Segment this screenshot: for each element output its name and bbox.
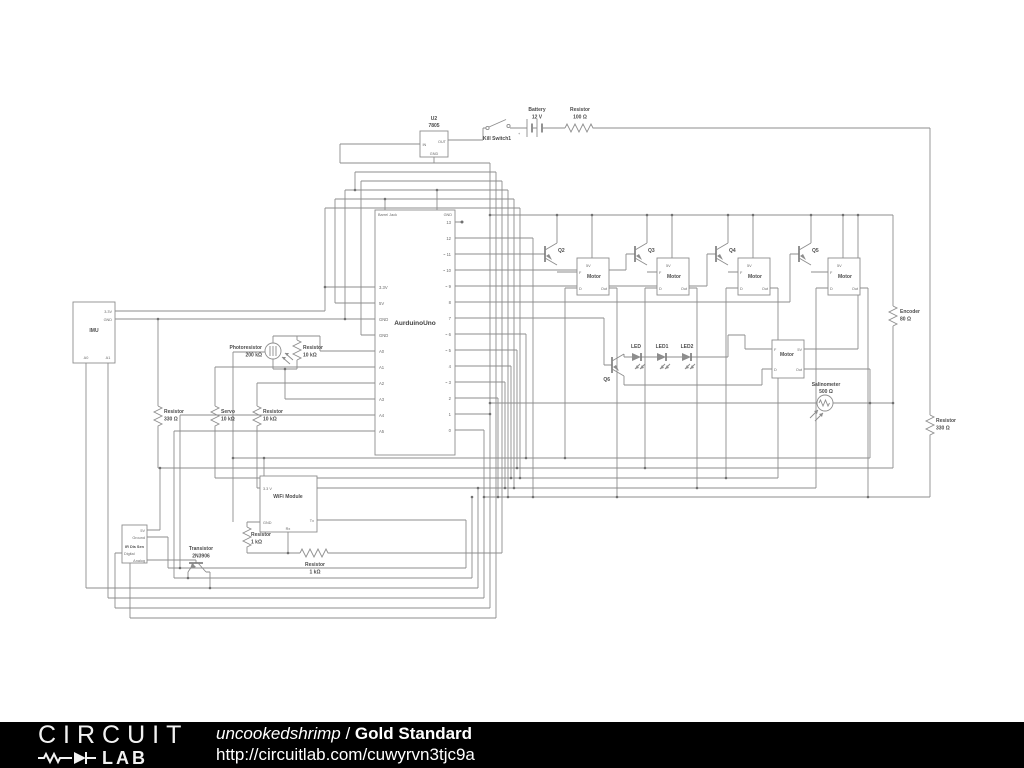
- arduino-uno-block: Barrel Jack GND AurduinoUno 3.3V 5V GND …: [375, 210, 455, 455]
- schematic-title: Gold Standard: [355, 724, 472, 743]
- schematic: U2 7805 IN OUT GND Kill Switch1 + Batter…: [0, 0, 1024, 722]
- wifi-module: 3.3 V WiFi Module GND Rx Tx: [260, 476, 317, 532]
- svg-text:Out: Out: [681, 287, 688, 291]
- transistor-q3: Q3: [635, 243, 655, 265]
- arduino-barrel-jack: Barrel Jack: [378, 213, 397, 217]
- schematic-url[interactable]: http://circuitlab.com/cuwyrvn3tjc9a: [216, 745, 475, 766]
- pnp-part: 2N3906: [192, 554, 210, 560]
- resistor-right-name: Resistor: [936, 418, 956, 424]
- svg-text:~ 9: ~ 9: [445, 284, 452, 289]
- svg-text:~ 5: ~ 5: [445, 348, 452, 353]
- servo: Servo 10 kΩ: [211, 406, 235, 427]
- q5-label: Q5: [812, 248, 819, 254]
- r330l-name: Resistor: [164, 409, 184, 415]
- photoresistor-value: 200 kΩ: [245, 353, 262, 359]
- svg-text:12: 12: [446, 236, 451, 241]
- encoder-name: Encoder: [900, 309, 920, 315]
- motor-name: Motor: [748, 274, 762, 280]
- motor-block-5: F D 5V Out Motor: [772, 340, 804, 378]
- svg-text:D: D: [659, 287, 662, 291]
- wifi-name: WiFi Module: [273, 494, 303, 500]
- imu-a1: A1: [106, 356, 111, 360]
- r1kv-value: 1 kΩ: [251, 540, 262, 546]
- svg-text:A5: A5: [379, 429, 385, 434]
- r10kp-value: 10 kΩ: [303, 353, 317, 359]
- r10kl-value: 10 kΩ: [263, 417, 277, 423]
- svg-text:A1: A1: [379, 365, 385, 370]
- motor-block-4: 5V F D Out Motor: [828, 258, 860, 295]
- svg-text:GND: GND: [379, 333, 388, 338]
- svg-text:Out: Out: [762, 287, 769, 291]
- svg-text:13: 13: [446, 220, 451, 225]
- svg-text:Out: Out: [796, 368, 803, 372]
- salinometer-name: Salinometer: [812, 382, 841, 388]
- resistor-right-value: 330 Ω: [936, 426, 950, 432]
- resistor-right-330: Resistor 330 Ω: [926, 415, 956, 437]
- imu-name: IMU: [89, 328, 99, 334]
- svg-text:Out: Out: [852, 287, 859, 291]
- regulator-pin-gnd: GND: [430, 152, 439, 156]
- encoder-resistor: Encoder 80 Ω: [889, 306, 920, 326]
- resistor-top: Resistor 100 Ω: [565, 107, 595, 132]
- pnp-name: Transistor: [189, 546, 213, 552]
- svg-text:D: D: [830, 287, 833, 291]
- svg-text:5V: 5V: [797, 348, 802, 352]
- q2-label: Q2: [558, 248, 565, 254]
- motor-name: Motor: [780, 352, 794, 358]
- svg-text:5V: 5V: [837, 264, 842, 268]
- kill-switch: Kill Switch1: [483, 120, 511, 143]
- svg-text:3.3V: 3.3V: [379, 285, 388, 290]
- servo-value: 10 kΩ: [221, 417, 235, 423]
- svg-text:D: D: [740, 287, 743, 291]
- resistor-diode-icon: [38, 751, 102, 765]
- r10kp-name: Resistor: [303, 345, 323, 351]
- svg-text:GND: GND: [379, 317, 388, 322]
- ir-5v: 5V: [140, 529, 145, 533]
- circuitlab-share-page: U2 7805 IN OUT GND Kill Switch1 + Batter…: [0, 0, 1024, 768]
- arduino-gnd-top: GND: [444, 213, 453, 217]
- r1kh-name: Resistor: [305, 562, 325, 568]
- resistor-10k-photo: Resistor 10 kΩ: [293, 340, 323, 360]
- resistor-1k-horizontal: Resistor 1 kΩ: [300, 549, 330, 576]
- ir-name: IR Dis Sen: [125, 545, 144, 549]
- wifi-rx: Rx: [286, 527, 291, 531]
- q6-label: Q6: [603, 377, 610, 383]
- imu-33v: 3.3V: [104, 310, 112, 314]
- encoder-value: 80 Ω: [900, 317, 911, 323]
- resistor-10k-left: Resistor 10 kΩ: [253, 406, 283, 427]
- led-label: LED: [631, 344, 641, 350]
- battery-name: Battery: [528, 107, 545, 113]
- battery-12v: + Battery 12 V: [518, 107, 546, 137]
- motor-name: Motor: [667, 274, 681, 280]
- author-name[interactable]: uncookedshrimp: [216, 724, 341, 743]
- imu-gnd: GND: [104, 318, 113, 322]
- imu-a0: A0: [84, 356, 89, 360]
- motor-block-3: 5V F D Out Motor: [738, 258, 770, 295]
- resistor-top-value: 100 Ω: [573, 115, 587, 121]
- q4-label: Q4: [729, 248, 736, 254]
- photoresistor-name: Photoresistor: [229, 345, 262, 351]
- regulator-ref: U2: [431, 116, 438, 122]
- svg-text:Out: Out: [601, 287, 608, 291]
- motor-block-2: 5V F D Out Motor: [657, 258, 689, 295]
- led1-label: LED1: [656, 344, 669, 350]
- wifi-tx: Tx: [310, 519, 314, 523]
- regulator-pin-in: IN: [423, 143, 427, 147]
- svg-text:A2: A2: [379, 381, 385, 386]
- meta-separator: /: [341, 724, 355, 743]
- svg-text:5V: 5V: [747, 264, 752, 268]
- motor-name: Motor: [587, 274, 601, 280]
- wifi-gnd: GND: [263, 521, 272, 525]
- logo-text-lab: LAB: [102, 749, 148, 767]
- svg-text:~ 6: ~ 6: [445, 332, 452, 337]
- imu-block: 3.3V GND IMU A0 A1: [73, 302, 115, 363]
- regulator-part: 7805: [428, 123, 439, 129]
- transistor-q2: Q2: [545, 243, 565, 265]
- logo-text-circuit: CIRCUIT: [38, 723, 188, 748]
- schematic-meta: uncookedshrimp / Gold Standard http://ci…: [216, 724, 475, 765]
- led-string: LED LED1 LED2: [631, 344, 695, 369]
- photoresistor: Photoresistor 200 kΩ: [229, 343, 293, 364]
- svg-text:~ 10: ~ 10: [443, 268, 452, 273]
- ir-analog: Analog: [133, 559, 145, 563]
- circuitlab-logo[interactable]: CIRCUIT LAB: [38, 723, 188, 767]
- svg-text:~ 3: ~ 3: [445, 380, 452, 385]
- svg-text:D: D: [774, 368, 777, 372]
- motor-name: Motor: [838, 274, 852, 280]
- r1kv-name: Resistor: [251, 532, 271, 538]
- r10kl-name: Resistor: [263, 409, 283, 415]
- ir-ground: Ground: [132, 536, 145, 540]
- battery-plus: +: [518, 132, 521, 136]
- arduino-name: AurduinoUno: [394, 320, 436, 327]
- q3-label: Q3: [648, 248, 655, 254]
- svg-text:A4: A4: [379, 413, 385, 418]
- resistor-top-name: Resistor: [570, 107, 590, 113]
- ir-distance-sensor: 5V Ground IR Dis Sen Digital Analog: [122, 525, 147, 563]
- svg-text:~ 11: ~ 11: [443, 252, 452, 257]
- kill-switch-label: Kill Switch1: [483, 136, 511, 142]
- svg-text:5V: 5V: [666, 264, 671, 268]
- svg-text:5V: 5V: [586, 264, 591, 268]
- servo-name: Servo: [221, 409, 235, 415]
- svg-text:5V: 5V: [379, 301, 384, 306]
- battery-value: 12 V: [532, 115, 543, 121]
- salinometer: Salinometer 500 Ω: [810, 382, 840, 421]
- salinometer-value: 500 Ω: [819, 389, 833, 395]
- r1kh-value: 1 kΩ: [310, 570, 321, 576]
- regulator-pin-out: OUT: [438, 140, 447, 144]
- r330l-value: 330 Ω: [164, 417, 178, 423]
- motor-block-1: 5V F D Out Motor: [577, 258, 609, 295]
- voltage-regulator-7805: U2 7805 IN OUT GND: [420, 116, 448, 157]
- svg-text:A0: A0: [379, 349, 385, 354]
- svg-text:D: D: [579, 287, 582, 291]
- footer-bar: CIRCUIT LAB uncookedshrimp / Gold Standa…: [0, 722, 1024, 768]
- transistor-q6: Q6: [603, 354, 624, 383]
- ir-digital: Digital: [124, 552, 135, 556]
- led2-label: LED2: [681, 344, 694, 350]
- transistor-q4: Q4: [716, 243, 736, 265]
- svg-text:A3: A3: [379, 397, 385, 402]
- transistor-q5: Q5: [799, 243, 819, 265]
- wifi-33v: 3.3 V: [263, 487, 272, 491]
